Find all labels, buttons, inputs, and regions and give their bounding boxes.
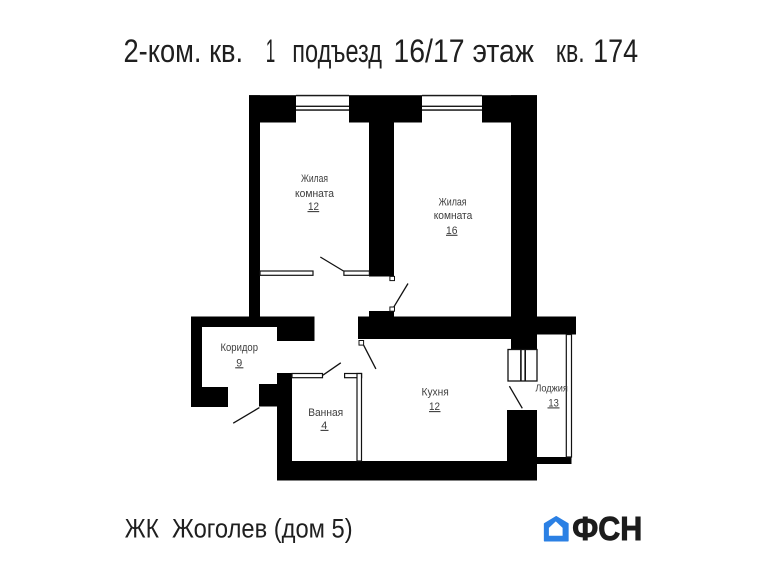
svg-text:Ванная: Ванная — [308, 407, 343, 419]
svg-text:174: 174 — [593, 33, 638, 69]
svg-text:Жилая: Жилая — [439, 196, 467, 208]
svg-text:ФСН: ФСН — [572, 510, 642, 547]
svg-text:Лоджия: Лоджия — [535, 383, 568, 395]
svg-text:1: 1 — [266, 33, 276, 69]
svg-text:кв.: кв. — [556, 33, 585, 69]
svg-text:комната: комната — [434, 210, 473, 222]
svg-text:16/17 этаж: 16/17 этаж — [393, 33, 534, 69]
svg-text:комната: комната — [295, 188, 335, 200]
svg-text:Жилая: Жилая — [301, 173, 328, 185]
svg-text:подъезд: подъезд — [292, 33, 382, 69]
svg-text:2-ком. кв.: 2-ком. кв. — [124, 33, 244, 69]
svg-text:Коридор: Коридор — [221, 342, 259, 354]
svg-text:ЖК: ЖК — [125, 514, 159, 544]
svg-text:Кухня: Кухня — [422, 387, 449, 399]
svg-text:Жоголев (дом 5): Жоголев (дом 5) — [172, 514, 353, 544]
